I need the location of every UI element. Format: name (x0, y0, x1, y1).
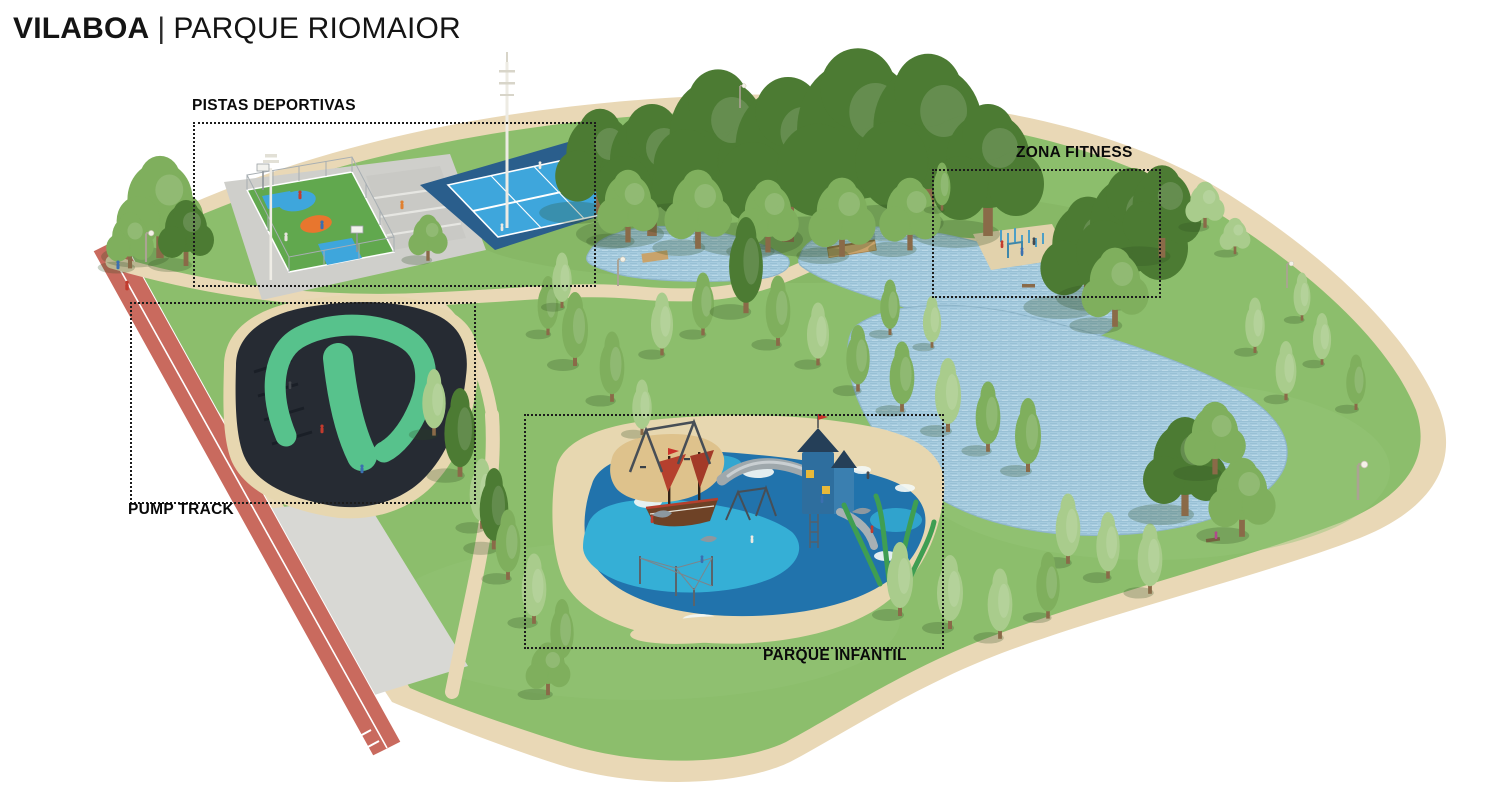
zone-label-parque-infantil: PARQUE INFANTIL (763, 647, 907, 665)
zone-label-pump-track: PUMP TRACK (128, 501, 234, 519)
zone-label-pistas-deportivas: PISTAS DEPORTIVAS (192, 97, 356, 115)
park-plan-page: VILABOA|PARQUE RIOMAIOR PISTAS DEPORTIVA… (0, 0, 1508, 785)
park-rendering (0, 0, 1508, 785)
zone-label-zona-fitness: ZONA FITNESS (1016, 144, 1133, 162)
title-municipality: VILABOA (13, 12, 149, 45)
title-separator: | (149, 12, 173, 45)
page-title: VILABOA|PARQUE RIOMAIOR (13, 12, 461, 46)
title-project: PARQUE RIOMAIOR (173, 12, 460, 45)
